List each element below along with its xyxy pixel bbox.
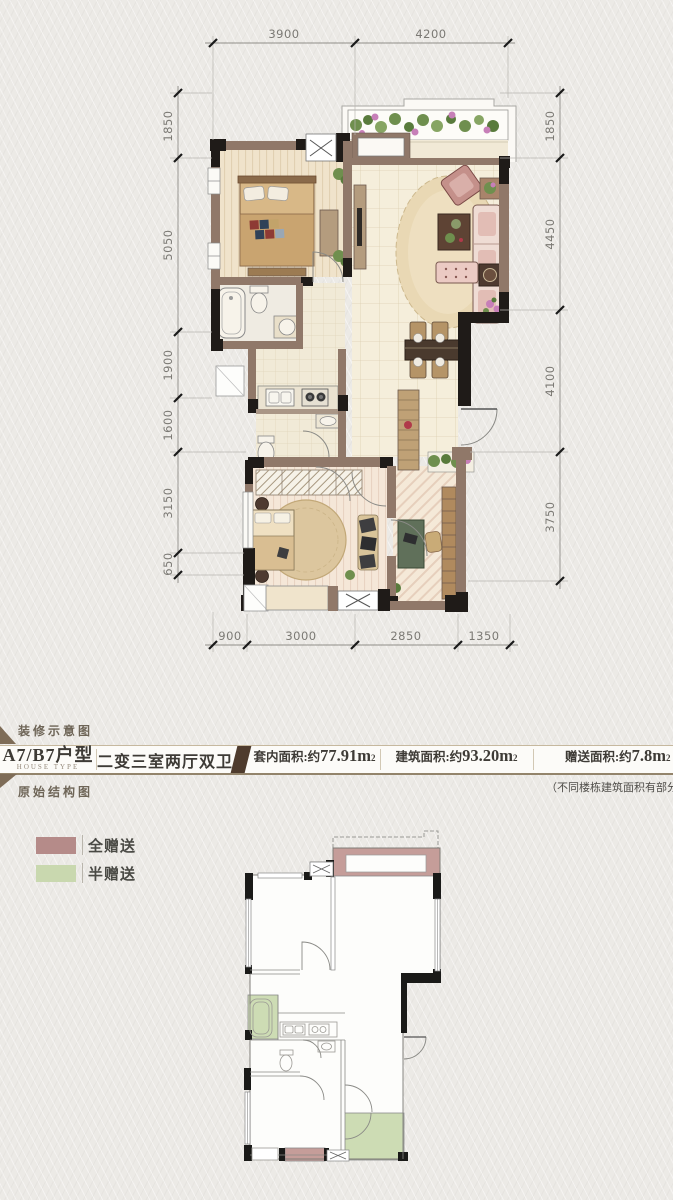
- shoe-cabinet: [398, 390, 419, 470]
- area-note: （不同楼栋建筑面积有部分差异）: [546, 779, 673, 795]
- build-area-sup: 2: [513, 753, 518, 763]
- wardrobe: [256, 470, 362, 495]
- stove: [302, 389, 328, 406]
- dim-label: 650: [161, 552, 175, 575]
- planter-box: [348, 110, 508, 140]
- decorated-label-marker: [0, 726, 16, 744]
- inner-area-sup: 2: [371, 753, 376, 763]
- corner-table: [480, 178, 501, 199]
- floor-flowers: [483, 298, 501, 315]
- dim-label: 1900: [161, 349, 175, 380]
- desk: [398, 520, 424, 568]
- full-gift-label: 全赠送: [88, 835, 136, 856]
- bookshelf: [442, 487, 456, 599]
- structural-fixtures: [250, 999, 337, 1160]
- full-gift-balcony: [333, 848, 440, 876]
- decorated-plan-label: 装修示意图: [18, 722, 93, 739]
- dining-area: [405, 322, 460, 378]
- dim-label: 2850: [390, 629, 421, 643]
- tv-console: [354, 185, 366, 269]
- dim-label: 900: [218, 629, 241, 643]
- cornice-outline: [333, 831, 438, 848]
- door-arcs: [303, 252, 497, 556]
- quilt-patches: [249, 219, 284, 240]
- wash-basin: [279, 319, 295, 335]
- full-gift-bed-bay: [285, 1148, 325, 1161]
- gift-area-block: 赠送面积:约7.8m2: [533, 746, 673, 773]
- ac-box: [327, 1150, 349, 1161]
- toilet: [258, 442, 274, 464]
- layout-block: 二变三室两厅双卫: [96, 746, 234, 773]
- structural-floor-plan: [0, 830, 673, 1200]
- gift-area-label: 赠送面积:约: [565, 746, 632, 765]
- legend-item-full-gift: 全赠送: [36, 836, 136, 854]
- bathroom-1: [218, 286, 300, 338]
- half-gift-label: 半赠送: [88, 863, 136, 884]
- inner-area-value: 77.91m: [320, 746, 371, 766]
- ottoman: [436, 262, 478, 283]
- dim-label: 3000: [285, 629, 316, 643]
- dim-label: 1850: [161, 110, 175, 141]
- house-info-bar: A7/B7户型 HOUSE TYPE 二变三室两厅双卫 套内面积:约77.91m…: [0, 745, 673, 775]
- dim-label: 4450: [543, 218, 557, 249]
- entry-planter: [428, 452, 474, 472]
- legend-item-half-gift: 半赠送: [36, 864, 136, 882]
- side-table: [479, 264, 501, 286]
- walls: [208, 133, 510, 612]
- floorplan-flyer: { "page": {"background": "#ECEAE6"}, "de…: [0, 0, 673, 1200]
- nightstand: [256, 498, 269, 511]
- house-type: A7/B7户型: [2, 748, 93, 763]
- balcony: [342, 99, 516, 162]
- sofa: [473, 205, 501, 323]
- inner-area-block: 套内面积:约77.91m2: [249, 746, 380, 773]
- dimension-lines: 3900 4200 1850 5050 1900 1600 3150 650 1…: [161, 27, 568, 652]
- living-room: [333, 164, 501, 328]
- inner-area-label: 套内面积:约: [253, 746, 320, 765]
- structural-door-arcs: [300, 942, 426, 1139]
- full-gift-swatch: [36, 837, 76, 854]
- bed-headboard: [238, 176, 316, 183]
- dim-label: 1600: [161, 409, 175, 440]
- dresser: [320, 210, 338, 256]
- toilet: [251, 293, 267, 313]
- bed-bench: [248, 268, 306, 276]
- plant: [345, 570, 355, 580]
- structural-footprint: [248, 831, 440, 1161]
- kitchen-sink: [266, 389, 294, 406]
- wash-basin: [320, 417, 336, 426]
- dim-label: 4100: [543, 365, 557, 396]
- dim-label: 1850: [543, 110, 557, 141]
- legend-divider: [82, 863, 83, 883]
- gift-area-value: 7.8m: [632, 746, 666, 766]
- nightstand: [256, 570, 269, 583]
- armchair: [440, 164, 483, 207]
- dining-table: [405, 340, 460, 360]
- dim-label: 5050: [161, 229, 175, 260]
- build-area-label: 建筑面积:约: [395, 746, 462, 765]
- hall-plants: [333, 168, 350, 267]
- dim-label: 1350: [468, 629, 499, 643]
- bathtub: [218, 288, 245, 338]
- coffee-table: [438, 214, 470, 250]
- structural-walls: [244, 860, 441, 1161]
- kitchen-counter: [258, 386, 338, 410]
- red-plant: [404, 421, 412, 429]
- desk-chair: [425, 531, 443, 553]
- balcony-plants: [350, 112, 499, 137]
- build-area-value: 93.20m: [462, 746, 513, 766]
- dim-label: 3750: [543, 501, 557, 532]
- rug: [396, 176, 500, 328]
- house-type-en: HOUSE TYPE: [17, 763, 79, 771]
- dim-label: 3150: [161, 487, 175, 518]
- master-bedroom: [238, 176, 338, 276]
- study-sofa: [358, 515, 378, 570]
- bathroom-2: [258, 414, 340, 464]
- floors: [220, 150, 499, 606]
- bed: [252, 510, 294, 570]
- dim-label: 3900: [268, 27, 299, 41]
- dim-label: 4200: [415, 27, 446, 41]
- tv: [357, 208, 362, 246]
- half-gift-study-balcony: [345, 1113, 404, 1160]
- kitchen: [258, 386, 338, 410]
- laptop: [403, 533, 418, 545]
- study: [283, 487, 456, 606]
- bed: [240, 183, 314, 266]
- structural-label-marker: [0, 774, 17, 788]
- structural-plan-label: 原始结构图: [18, 783, 93, 800]
- layout-desc: 二变三室两厅双卫: [97, 748, 233, 772]
- round-rug: [266, 500, 346, 580]
- plant: [391, 583, 401, 593]
- legend-divider: [82, 835, 83, 855]
- decorated-floor-plan: 3900 4200 1850 5050 1900 1600 3150 650 1…: [0, 0, 673, 700]
- gift-area-sup: 2: [666, 753, 671, 763]
- half-gift-bath-bay: [248, 995, 278, 1039]
- half-gift-swatch: [36, 865, 76, 882]
- build-area-block: 建筑面积:约93.20m2: [380, 746, 533, 773]
- house-type-block: A7/B7户型 HOUSE TYPE: [0, 746, 96, 773]
- bedroom-2: [252, 470, 362, 583]
